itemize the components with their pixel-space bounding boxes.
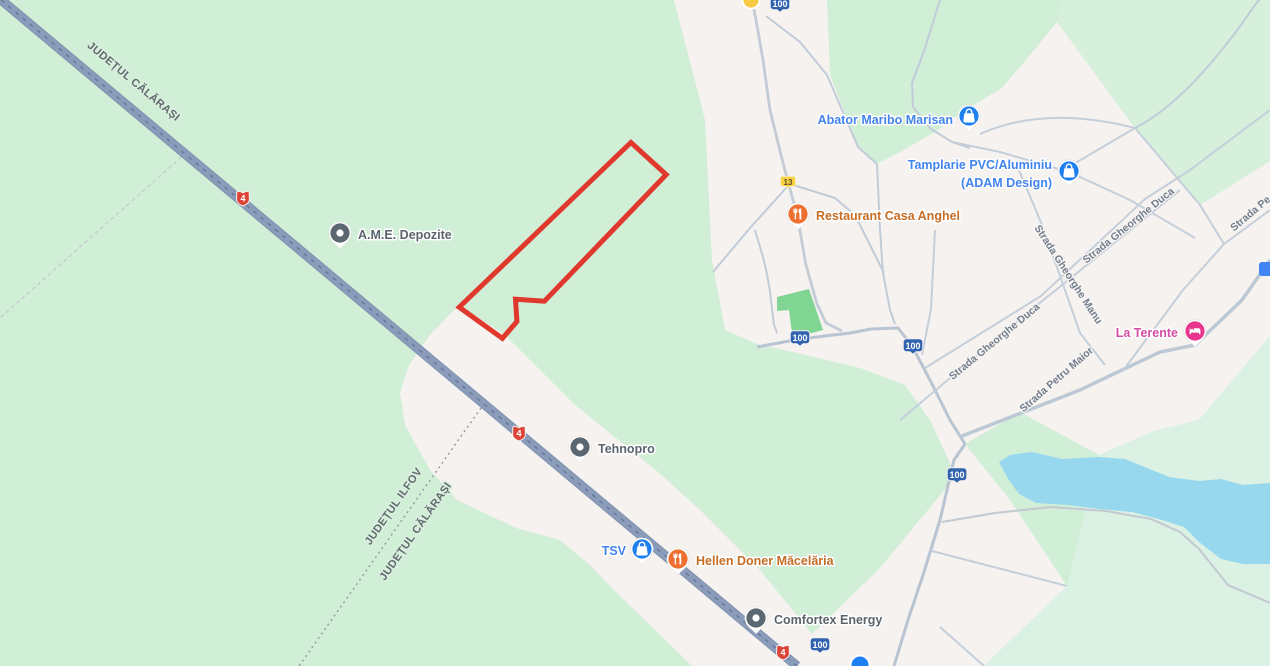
svg-text:100: 100 <box>905 341 920 351</box>
svg-text:100: 100 <box>792 333 807 343</box>
svg-text:Abator Maribo Marisan: Abator Maribo Marisan <box>818 113 953 127</box>
svg-text:La Terente: La Terente <box>1116 326 1178 340</box>
svg-text:4: 4 <box>516 428 521 438</box>
svg-text:Hellen Doner Măcelăria: Hellen Doner Măcelăria <box>696 554 835 568</box>
svg-text:4: 4 <box>780 647 785 657</box>
svg-text:Tamplarie PVC/Aluminiu: Tamplarie PVC/Aluminiu <box>908 158 1052 172</box>
svg-text:TSV: TSV <box>602 544 627 558</box>
svg-text:Comfortex Energy: Comfortex Energy <box>774 613 882 627</box>
svg-text:13: 13 <box>784 178 793 187</box>
svg-text:100: 100 <box>949 470 964 480</box>
svg-text:100: 100 <box>772 0 787 9</box>
svg-text:100: 100 <box>812 640 827 650</box>
svg-text:4: 4 <box>240 193 245 203</box>
svg-text:A.M.E. Depozite: A.M.E. Depozite <box>358 228 452 242</box>
svg-text:Tehnopro: Tehnopro <box>598 442 655 456</box>
svg-text:Restaurant Casa Anghel: Restaurant Casa Anghel <box>816 209 960 223</box>
svg-text:(ADAM Design): (ADAM Design) <box>961 176 1052 190</box>
